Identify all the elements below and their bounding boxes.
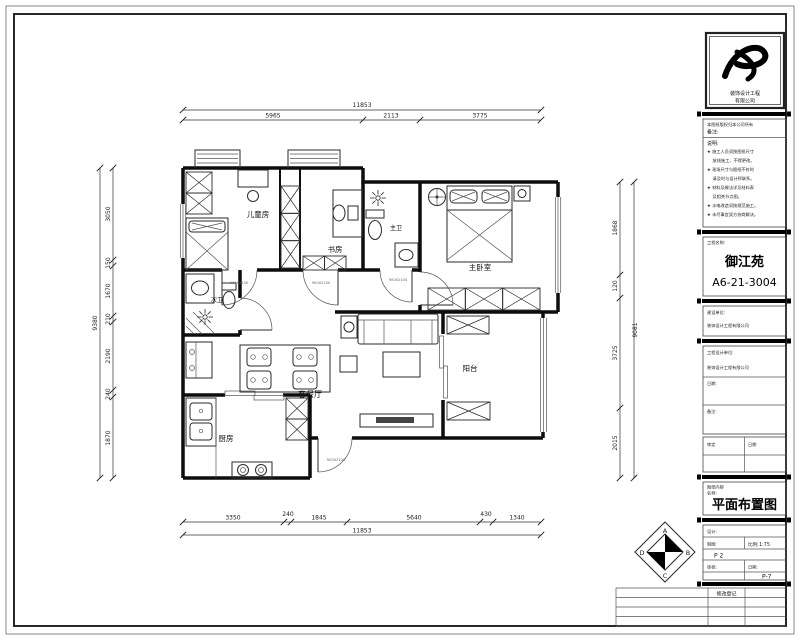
- label-second-bath: 次卫: [211, 296, 223, 304]
- designer-box: 工程设计单位: 装饰设计工程有限公司 日期: 备注:: [703, 346, 786, 434]
- content-label2: 名称:: [707, 490, 717, 497]
- compass-letter-c: C: [663, 572, 668, 580]
- floor-plan: 儿童房 书房 主卫 主卧室 次卫 客餐厅 厨房 阳台 900X2100 900X…: [92, 102, 639, 538]
- client-value: 装饰设计工程有限公司: [707, 322, 749, 329]
- drawing-sheet: 儿童房 书房 主卫 主卧室 次卫 客餐厅 厨房 阳台 900X2100 900X…: [0, 0, 800, 640]
- note-line: 请及时与设计师联系。: [707, 175, 754, 182]
- nightstand: [514, 186, 530, 201]
- door-tag: 900X2100: [389, 278, 408, 282]
- kitchen-slider-2: [254, 396, 284, 401]
- note-line: ★ 现场尺寸与图纸不符时: [707, 166, 755, 173]
- dim-top-seg: 2113: [383, 113, 398, 120]
- approval-mark: P 2: [714, 553, 724, 560]
- bay-window-right: [288, 150, 340, 168]
- label-master-bedroom: 主卧室: [469, 262, 492, 272]
- master-bed: [447, 186, 512, 262]
- dim-ticks: [97, 107, 637, 538]
- logo-box: 装饰设计工程 有限公司: [706, 33, 784, 108]
- dim-bottom-seg: 5640: [406, 515, 421, 522]
- dim-left-total: 9380: [92, 315, 99, 330]
- design-label: 设计:: [707, 528, 717, 535]
- designer-value: 装饰设计工程有限公司: [707, 364, 749, 371]
- date-label: 日期:: [707, 381, 717, 387]
- door-tag: 900X2100: [230, 281, 249, 285]
- dim-right-seg: 120: [612, 280, 619, 292]
- revision-header: 修改登记: [716, 591, 736, 598]
- label-children-room: 儿童房: [247, 209, 270, 219]
- designer-label: 工程设计单位:: [707, 349, 734, 356]
- sheet-svg: 儿童房 书房 主卫 主卧室 次卫 客餐厅 厨房 阳台 900X2100 900X…: [0, 0, 800, 640]
- note-line: ★ 材料及做法详见材料表: [707, 184, 755, 191]
- remark2-label: 备注:: [707, 408, 717, 415]
- project-name: 御江苑: [724, 254, 764, 270]
- dim-bottom-seg: 240: [282, 511, 294, 518]
- door-tag: 900X2100: [327, 458, 346, 462]
- compass-letter-a: A: [663, 527, 668, 535]
- dim-right-seg: 2015: [612, 435, 619, 450]
- sideboard: [186, 342, 212, 378]
- label-balcony: 阳台: [463, 363, 478, 373]
- kitchen-sink: [186, 398, 216, 446]
- dim-left-seg: 1870: [105, 430, 112, 445]
- notes-header: 本图纸版权归本公司所有: [707, 121, 753, 128]
- bay-window-left: [195, 150, 240, 168]
- cad-line: [199, 311, 202, 314]
- sheet-number: P-7: [762, 574, 772, 581]
- logo-company-line1: 装饰设计工程: [730, 90, 760, 97]
- project-label: 工程名称:: [707, 239, 725, 246]
- dim-left-seg: 240: [105, 388, 112, 400]
- study-desk: [333, 190, 362, 237]
- compass-letter-d: D: [639, 549, 644, 557]
- cad-line: [207, 311, 210, 314]
- dim-top-total: 11853: [352, 102, 371, 109]
- door-tag: 900X2100: [312, 281, 331, 285]
- children-bed: [186, 218, 228, 270]
- lamp-icon: [376, 196, 380, 200]
- master-bath-basin: [395, 243, 418, 267]
- dim-bottom-seg: 1340: [509, 515, 524, 522]
- compass: A B C D: [635, 522, 695, 582]
- approve-date-label: 日期: [748, 442, 756, 448]
- label-master-bath: 主卫: [390, 224, 402, 232]
- drawing-title-box: 图纸内容 名称: 平面布置图: [703, 482, 786, 515]
- client-box: 建设单位: 装饰设计工程有限公司: [703, 306, 786, 336]
- note-line: ★ 施工人员须按图纸尺寸: [707, 148, 754, 155]
- second-bath-basin: [186, 274, 214, 303]
- compass-letter-b: B: [686, 549, 690, 557]
- children-desk: [238, 170, 268, 202]
- title-block: 装饰设计工程 有限公司 本图纸版权归本公司所有 备注: 说明: ★ 施工人员须按…: [616, 33, 791, 626]
- notes-box: 本图纸版权归本公司所有 备注: 说明: ★ 施工人员须按图纸尺寸 放线施工，不得…: [703, 119, 786, 227]
- project-number: A6-21-3004: [712, 276, 776, 289]
- approval-table: 审定 日期: [703, 437, 786, 472]
- dim-top-seg: 3775: [472, 113, 487, 120]
- cad-line: [380, 192, 383, 195]
- balcony-glazing: [541, 318, 547, 432]
- check-label: 审核:: [707, 564, 717, 571]
- dining-table: [240, 345, 330, 392]
- label-kitchen: 厨房: [219, 433, 234, 443]
- logo-swirl-icon: [725, 48, 765, 79]
- coffee-table: [383, 352, 420, 377]
- note-line: 放线施工，不得更改。: [707, 157, 754, 164]
- draft-label: 制图:: [707, 541, 717, 548]
- cad-line: [207, 319, 210, 322]
- dim-bottom-seg: 430: [480, 511, 492, 518]
- dim-right-seg: 1868: [612, 220, 619, 235]
- note-line: ★ 水电改造须按规范施工。: [707, 202, 758, 209]
- date2-label: 日期:: [748, 565, 758, 571]
- cad-line: [372, 200, 375, 203]
- cad-line: [380, 200, 383, 203]
- project-box: 工程名称: 御江苑 A6-21-3004: [703, 237, 786, 296]
- dim-top-seg: 5965: [265, 113, 280, 120]
- stool: [340, 356, 357, 372]
- tv-cabinet: [360, 414, 433, 427]
- client-label: 建设单位:: [707, 309, 725, 316]
- dim-left-seg: 2190: [105, 348, 112, 363]
- balcony-slider-2: [444, 366, 448, 398]
- drawing-title: 平面布置图: [712, 497, 777, 513]
- furniture: [186, 170, 530, 478]
- ceiling-symbol: [429, 189, 446, 206]
- lamp-icon: [203, 315, 207, 319]
- dim-right-total: 9081: [632, 322, 639, 337]
- dim-left-seg: 150: [105, 257, 112, 269]
- label-living-dining: 客餐厅: [298, 389, 322, 399]
- stove: [232, 462, 272, 478]
- cad-line: [372, 192, 375, 195]
- revision-table: 修改登记: [616, 588, 786, 626]
- dim-left-seg: 210: [105, 313, 112, 325]
- dim-bottom-seg: 1845: [311, 515, 326, 522]
- dim-bottom-seg: 3350: [225, 515, 240, 522]
- scale-value: 比例 1:75: [748, 541, 770, 548]
- dim-bottom-total: 11853: [352, 528, 371, 535]
- master-bath-toilet: [366, 210, 384, 240]
- dim-right-seg: 3725: [612, 345, 619, 360]
- logo-company-line2: 有限公司: [735, 98, 755, 105]
- note-line: 及相关节点图。: [707, 193, 742, 200]
- dim-left-seg: 1670: [105, 283, 112, 298]
- sofa: [341, 314, 438, 344]
- approve-label: 审定: [707, 441, 715, 448]
- label-study: 书房: [328, 244, 343, 254]
- content-label1: 图纸内容: [707, 484, 724, 491]
- info-table: 设计: 制图: 比例 1:75 P 2 审核: 日期: P-7: [703, 525, 786, 581]
- shower-hatch: [186, 312, 215, 334]
- notes-label: 说明:: [707, 140, 719, 147]
- note-line: ★ 未尽事宜双方协商解决。: [707, 211, 758, 218]
- dim-left-seg: 3050: [105, 206, 112, 221]
- remark-label: 备注:: [707, 129, 719, 136]
- balcony-slider-1: [440, 336, 444, 368]
- room-labels: 儿童房 书房 主卫 主卧室 次卫 客餐厅 厨房 阳台 900X2100 900X…: [211, 209, 492, 462]
- walls: [183, 168, 558, 478]
